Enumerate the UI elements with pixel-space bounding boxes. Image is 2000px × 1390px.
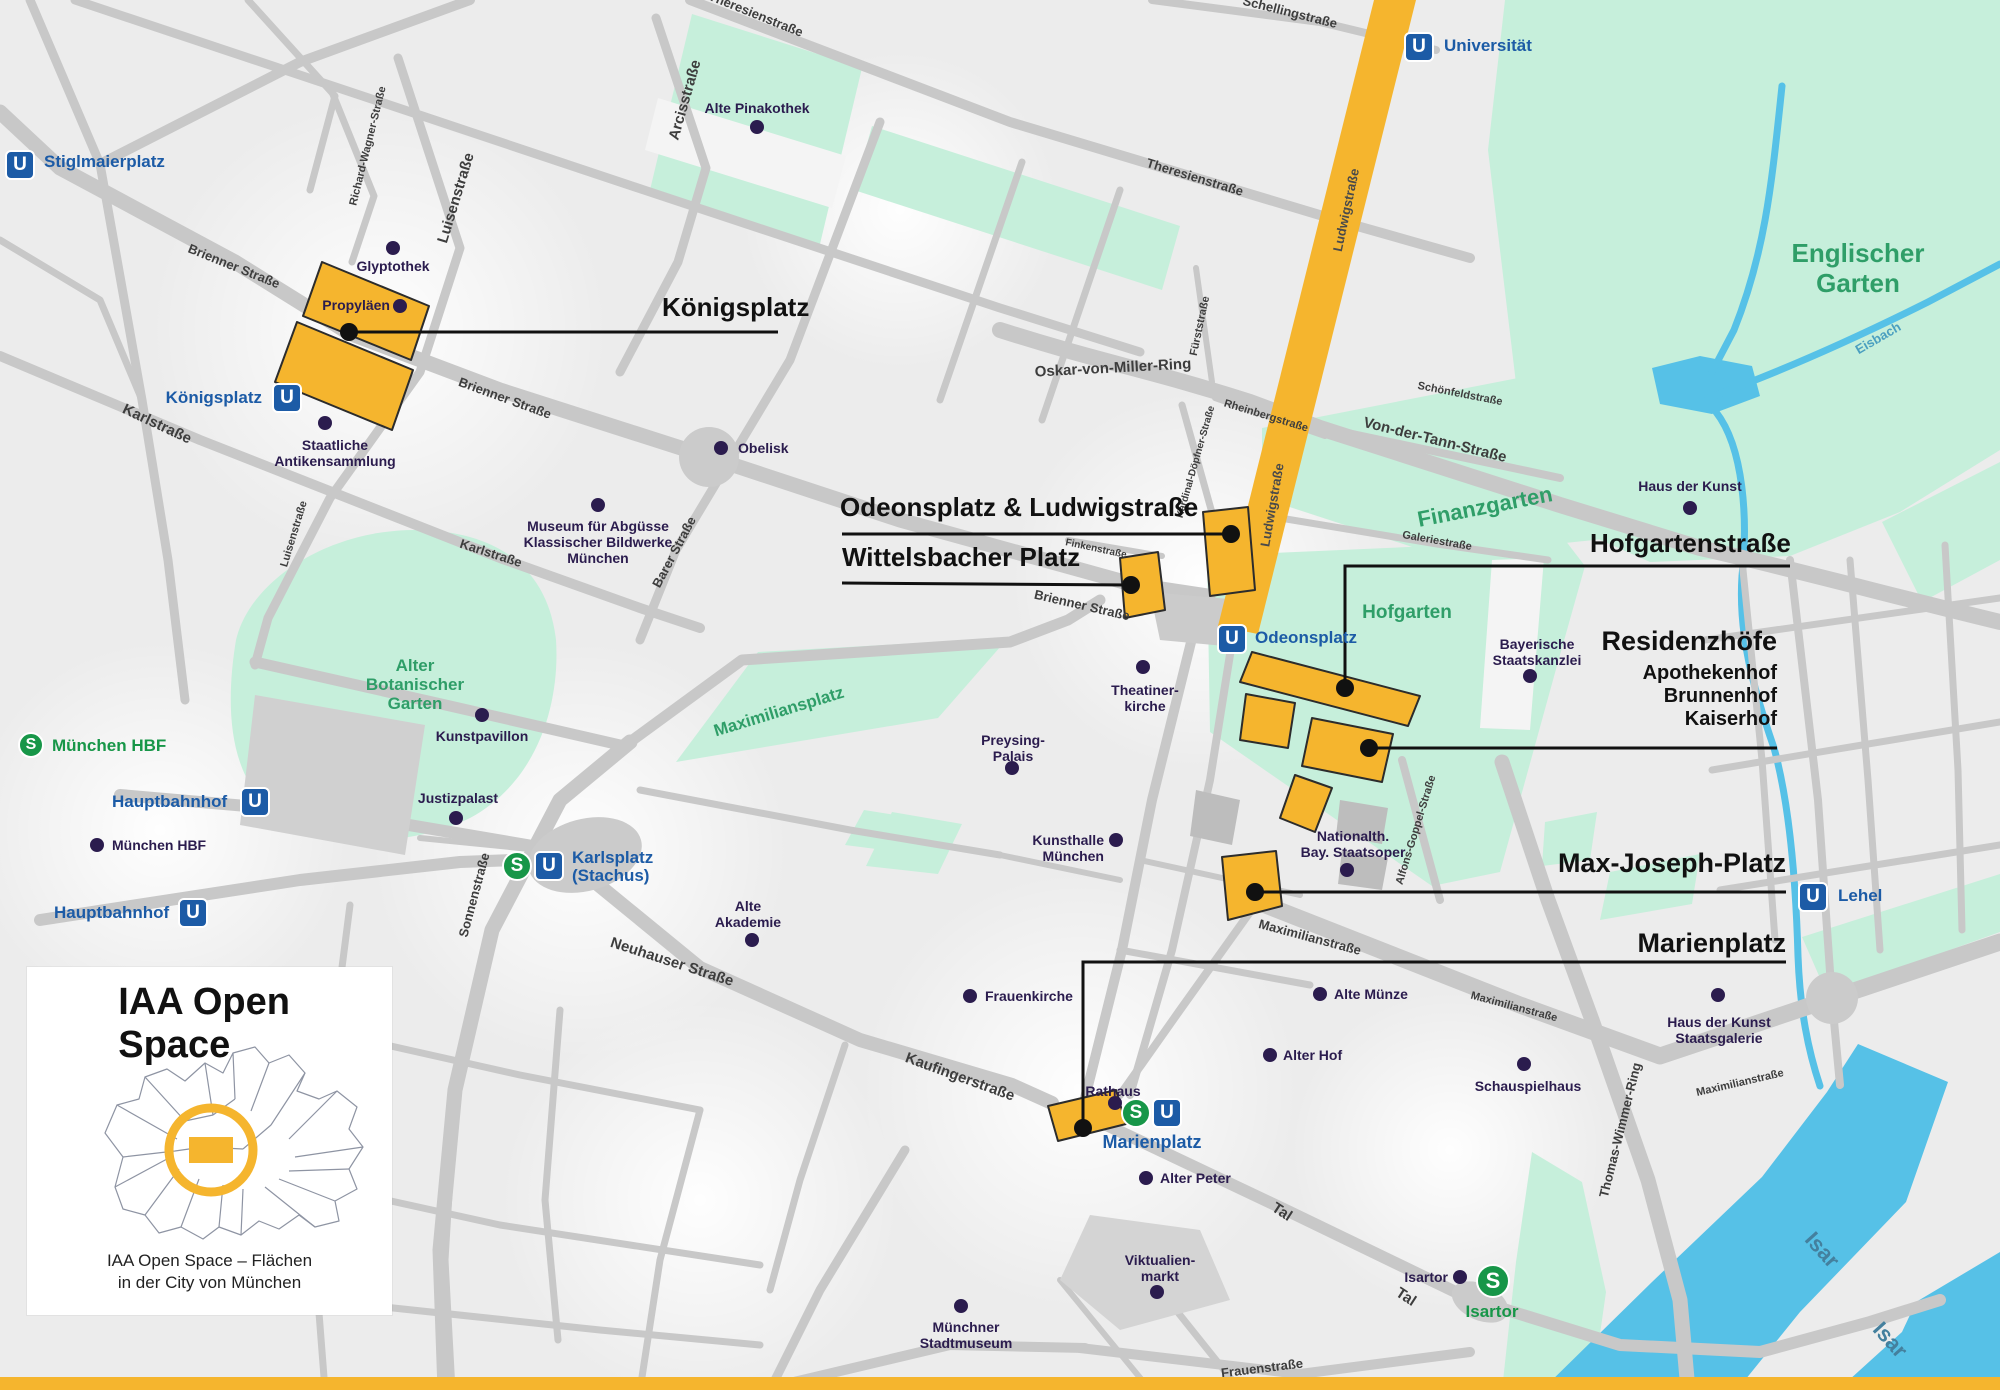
legend-district-map	[27, 1029, 392, 1259]
poi-alte-akademie: Akademie	[715, 914, 781, 931]
station-universitaet: Universität	[1444, 36, 1532, 56]
poi-propylaeen: Propyläen	[322, 297, 390, 314]
callout-residenzhoefe: Residenzhöfe	[1601, 626, 1777, 657]
station-isartor: Isartor	[1466, 1302, 1519, 1322]
park-label-englischer-garten: Englischer	[1792, 238, 1925, 269]
ubahn-icon: U	[1152, 1098, 1182, 1128]
poi-antikensammlung: Staatliche	[302, 437, 368, 454]
ubahn-icon: U	[5, 150, 35, 180]
poi-alter-hof: Alter Hof	[1283, 1047, 1342, 1064]
station-lehel: Lehel	[1838, 886, 1882, 906]
station-koenigsplatz: Königsplatz	[166, 388, 262, 408]
poi-hdk-staatsgalerie: Staatsgalerie	[1675, 1030, 1762, 1047]
station-marienplatz: Marienplatz	[1102, 1132, 1201, 1153]
poi-staatskanzlei: Staatskanzlei	[1493, 652, 1582, 669]
station-hauptbahnhof: Hauptbahnhof	[54, 903, 169, 923]
poi-museum-abguesse: Museum für Abgüsse	[527, 518, 669, 535]
poi-preysing-palais: Preysing-	[981, 732, 1045, 749]
station-odeonsplatz: Odeonsplatz	[1255, 628, 1357, 648]
station-karlsplatz: Karlsplatz	[572, 848, 653, 868]
poi-glyptothek: Glyptothek	[356, 258, 429, 275]
legend-caption: in der City von München	[118, 1273, 301, 1293]
callout-koenigsplatz: Königsplatz	[662, 292, 809, 323]
legend-box: IAA Open Space IAA Open Space – Flächen …	[27, 967, 392, 1315]
poi-frauenkirche: Frauenkirche	[985, 988, 1073, 1005]
ubahn-icon: U	[272, 383, 302, 413]
poi-theatinerkirche: kirche	[1124, 698, 1165, 715]
ubahn-icon: U	[1798, 882, 1828, 912]
park-label-alter-botanischer-garten: Alter	[396, 656, 435, 676]
legend-caption: IAA Open Space – Flächen	[107, 1251, 312, 1271]
poi-alter-peter: Alter Peter	[1160, 1170, 1231, 1187]
callout-max-joseph-platz: Max-Joseph-Platz	[1558, 848, 1786, 879]
poi-stadtmuseum: Stadtmuseum	[920, 1335, 1013, 1352]
poi-stadtmuseum: Münchner	[933, 1319, 1000, 1336]
bottom-accent-bar	[0, 1377, 2000, 1390]
poi-staatskanzlei: Bayerische	[1500, 636, 1575, 653]
poi-justizpalast: Justizpalast	[418, 790, 498, 807]
park-label-alter-botanischer-garten: Botanischer	[366, 675, 464, 695]
ubahn-icon: U	[240, 787, 270, 817]
poi-schauspielhaus: Schauspielhaus	[1475, 1078, 1582, 1095]
callout-wittelsbacher-platz: Wittelsbacher Platz	[842, 542, 1080, 573]
poi-museum-abguesse: Klassischer Bildwerke	[524, 534, 673, 551]
munich-iaa-open-space-map: Theresienstraße Theresienstraße Schellin…	[0, 0, 2000, 1390]
poi-nationaltheater: Nationalth.	[1317, 828, 1389, 845]
sbahn-icon: S	[1121, 1098, 1151, 1128]
poi-alte-akademie: Alte	[735, 898, 761, 915]
poi-isartor: Isartor	[1404, 1269, 1448, 1286]
park-label-hofgarten: Hofgarten	[1362, 602, 1452, 624]
sbahn-icon: S	[18, 732, 44, 758]
ubahn-icon: U	[1404, 32, 1434, 62]
station-karlsplatz: (Stachus)	[572, 866, 649, 886]
callout-residenzhoefe-sub: Brunnenhof	[1664, 685, 1777, 708]
sbahn-icon: S	[1476, 1264, 1510, 1298]
poi-hdk-staatsgalerie: Haus der Kunst	[1667, 1014, 1770, 1031]
poi-viktualienmarkt: markt	[1141, 1268, 1179, 1285]
poi-preysing-palais: Palais	[993, 748, 1033, 765]
callout-hofgartenstrasse: Hofgartenstraße	[1590, 528, 1791, 559]
callout-odeonsplatz-ludwigstrasse: Odeonsplatz & Ludwigstraße	[840, 492, 1198, 523]
station-muenchen-hbf: München HBF	[52, 736, 166, 756]
ubahn-icon: U	[1217, 624, 1247, 654]
ubahn-icon: U	[534, 851, 564, 881]
park-label-englischer-garten: Garten	[1816, 268, 1900, 299]
poi-museum-abguesse: München	[567, 550, 628, 567]
poi-theatinerkirche: Theatiner-	[1111, 682, 1179, 699]
poi-alte-muenze: Alte Münze	[1334, 986, 1408, 1003]
station-hauptbahnhof: Hauptbahnhof	[112, 792, 227, 812]
legend-highlight-rect	[189, 1137, 233, 1163]
park-label-alter-botanischer-garten: Garten	[388, 694, 443, 714]
poi-muenchen-hbf: München HBF	[112, 837, 206, 854]
callout-marienplatz: Marienplatz	[1637, 928, 1786, 959]
poi-alte-pinakothek: Alte Pinakothek	[704, 100, 809, 117]
poi-antikensammlung: Antikensammlung	[274, 453, 395, 470]
sbahn-icon: S	[502, 851, 532, 881]
poi-obelisk: Obelisk	[738, 440, 789, 457]
poi-nationaltheater: Bay. Staatsoper	[1301, 844, 1406, 861]
poi-kunsthalle: München	[1043, 848, 1104, 865]
ubahn-icon: U	[178, 898, 208, 928]
poi-haus-der-kunst: Haus der Kunst	[1638, 478, 1741, 495]
poi-viktualienmarkt: Viktualien-	[1125, 1252, 1196, 1269]
poi-kunsthalle: Kunsthalle	[1032, 832, 1104, 849]
poi-kunstpavillon: Kunstpavillon	[436, 728, 529, 745]
station-stiglmaierplatz: Stiglmaierplatz	[44, 152, 165, 172]
callout-residenzhoefe-sub: Apothekenhof	[1643, 662, 1777, 685]
callout-residenzhoefe-sub: Kaiserhof	[1685, 708, 1777, 731]
